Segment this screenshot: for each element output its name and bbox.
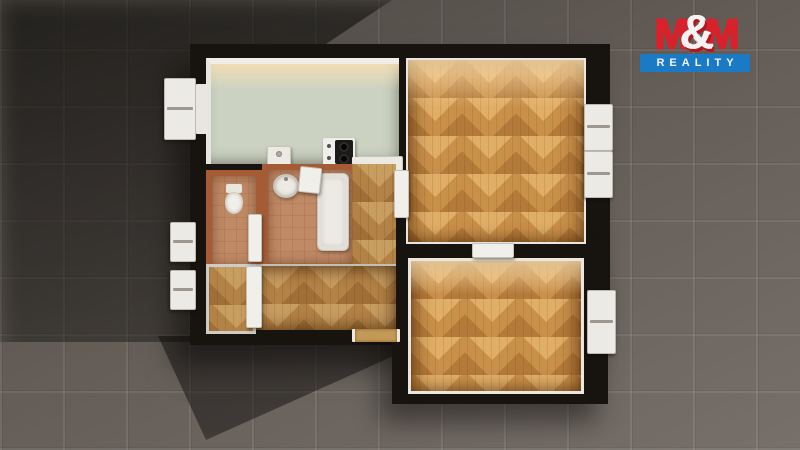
wc-window	[170, 222, 196, 262]
logo-mm-text: M&M	[640, 13, 750, 53]
entry-door	[352, 329, 400, 342]
closet-door	[246, 266, 262, 328]
bathroom-door	[298, 166, 323, 194]
room-living	[406, 58, 586, 244]
closet-window	[170, 270, 196, 310]
window-frame	[173, 288, 193, 291]
window-frame	[587, 172, 610, 175]
window-frame	[587, 125, 610, 128]
toilet-bowl	[225, 192, 243, 214]
living-window-upper	[584, 104, 613, 151]
floorplan-render: M&M REALITY	[0, 0, 800, 450]
living-room-door	[394, 170, 409, 218]
kitchen-window	[164, 78, 196, 140]
burner-icon	[339, 142, 349, 152]
knob-icon	[327, 156, 331, 160]
window-frame	[590, 320, 613, 323]
hallway	[250, 264, 396, 330]
bathtub	[317, 173, 349, 251]
living-window-lower	[584, 151, 613, 198]
kitchen-light	[211, 64, 399, 164]
kitchen-window-sill	[196, 84, 208, 134]
room-kitchen	[206, 58, 399, 164]
kitchen-threshold	[352, 157, 394, 164]
window-frame	[173, 240, 193, 243]
bedroom-window	[587, 290, 616, 354]
room-bedroom	[408, 258, 584, 394]
washbasin	[273, 174, 299, 198]
logo-ampersand: &	[680, 5, 709, 59]
bedroom-door	[472, 243, 514, 258]
window-frame	[167, 107, 193, 110]
mm-reality-logo: M&M REALITY	[640, 14, 750, 72]
wc-door	[248, 214, 262, 262]
kitchen-sink	[267, 146, 291, 166]
knob-icon	[327, 144, 331, 148]
living-light	[408, 60, 584, 242]
burner-icon	[339, 154, 349, 164]
stove	[323, 138, 355, 166]
toilet	[225, 184, 243, 214]
bedroom-light	[411, 261, 581, 391]
room-bathroom	[262, 164, 358, 270]
